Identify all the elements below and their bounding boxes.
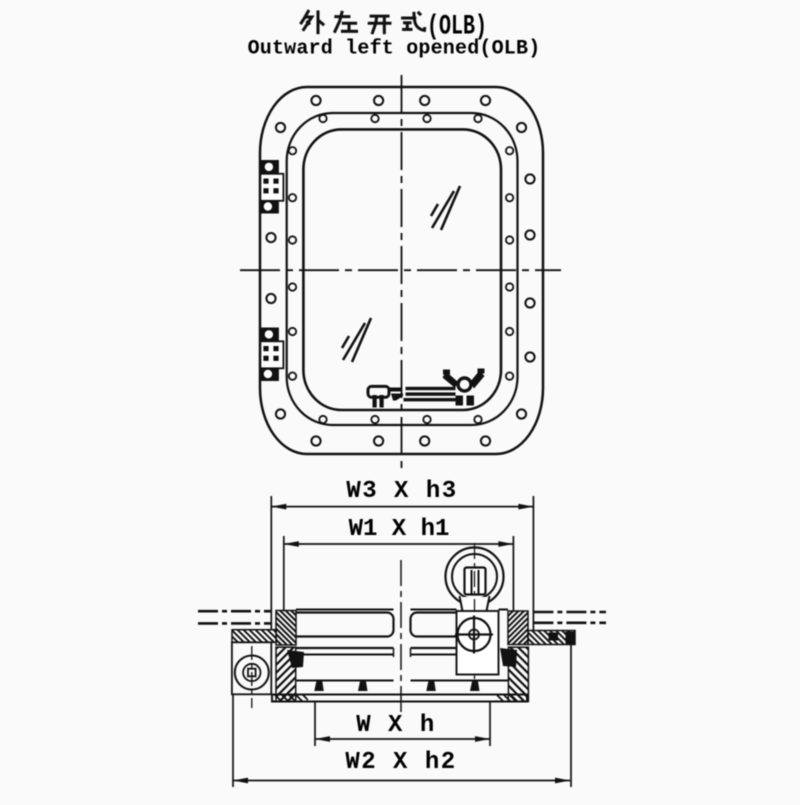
svg-text:W2 X h2: W2 X h2	[345, 749, 456, 776]
svg-text:W3 X h3: W3 X h3	[346, 478, 457, 505]
svg-text:Outward left opened(OLB): Outward left opened(OLB)	[248, 38, 541, 61]
svg-text:W1 X h1: W1 X h1	[349, 516, 450, 543]
svg-text:W X h: W X h	[356, 712, 436, 739]
